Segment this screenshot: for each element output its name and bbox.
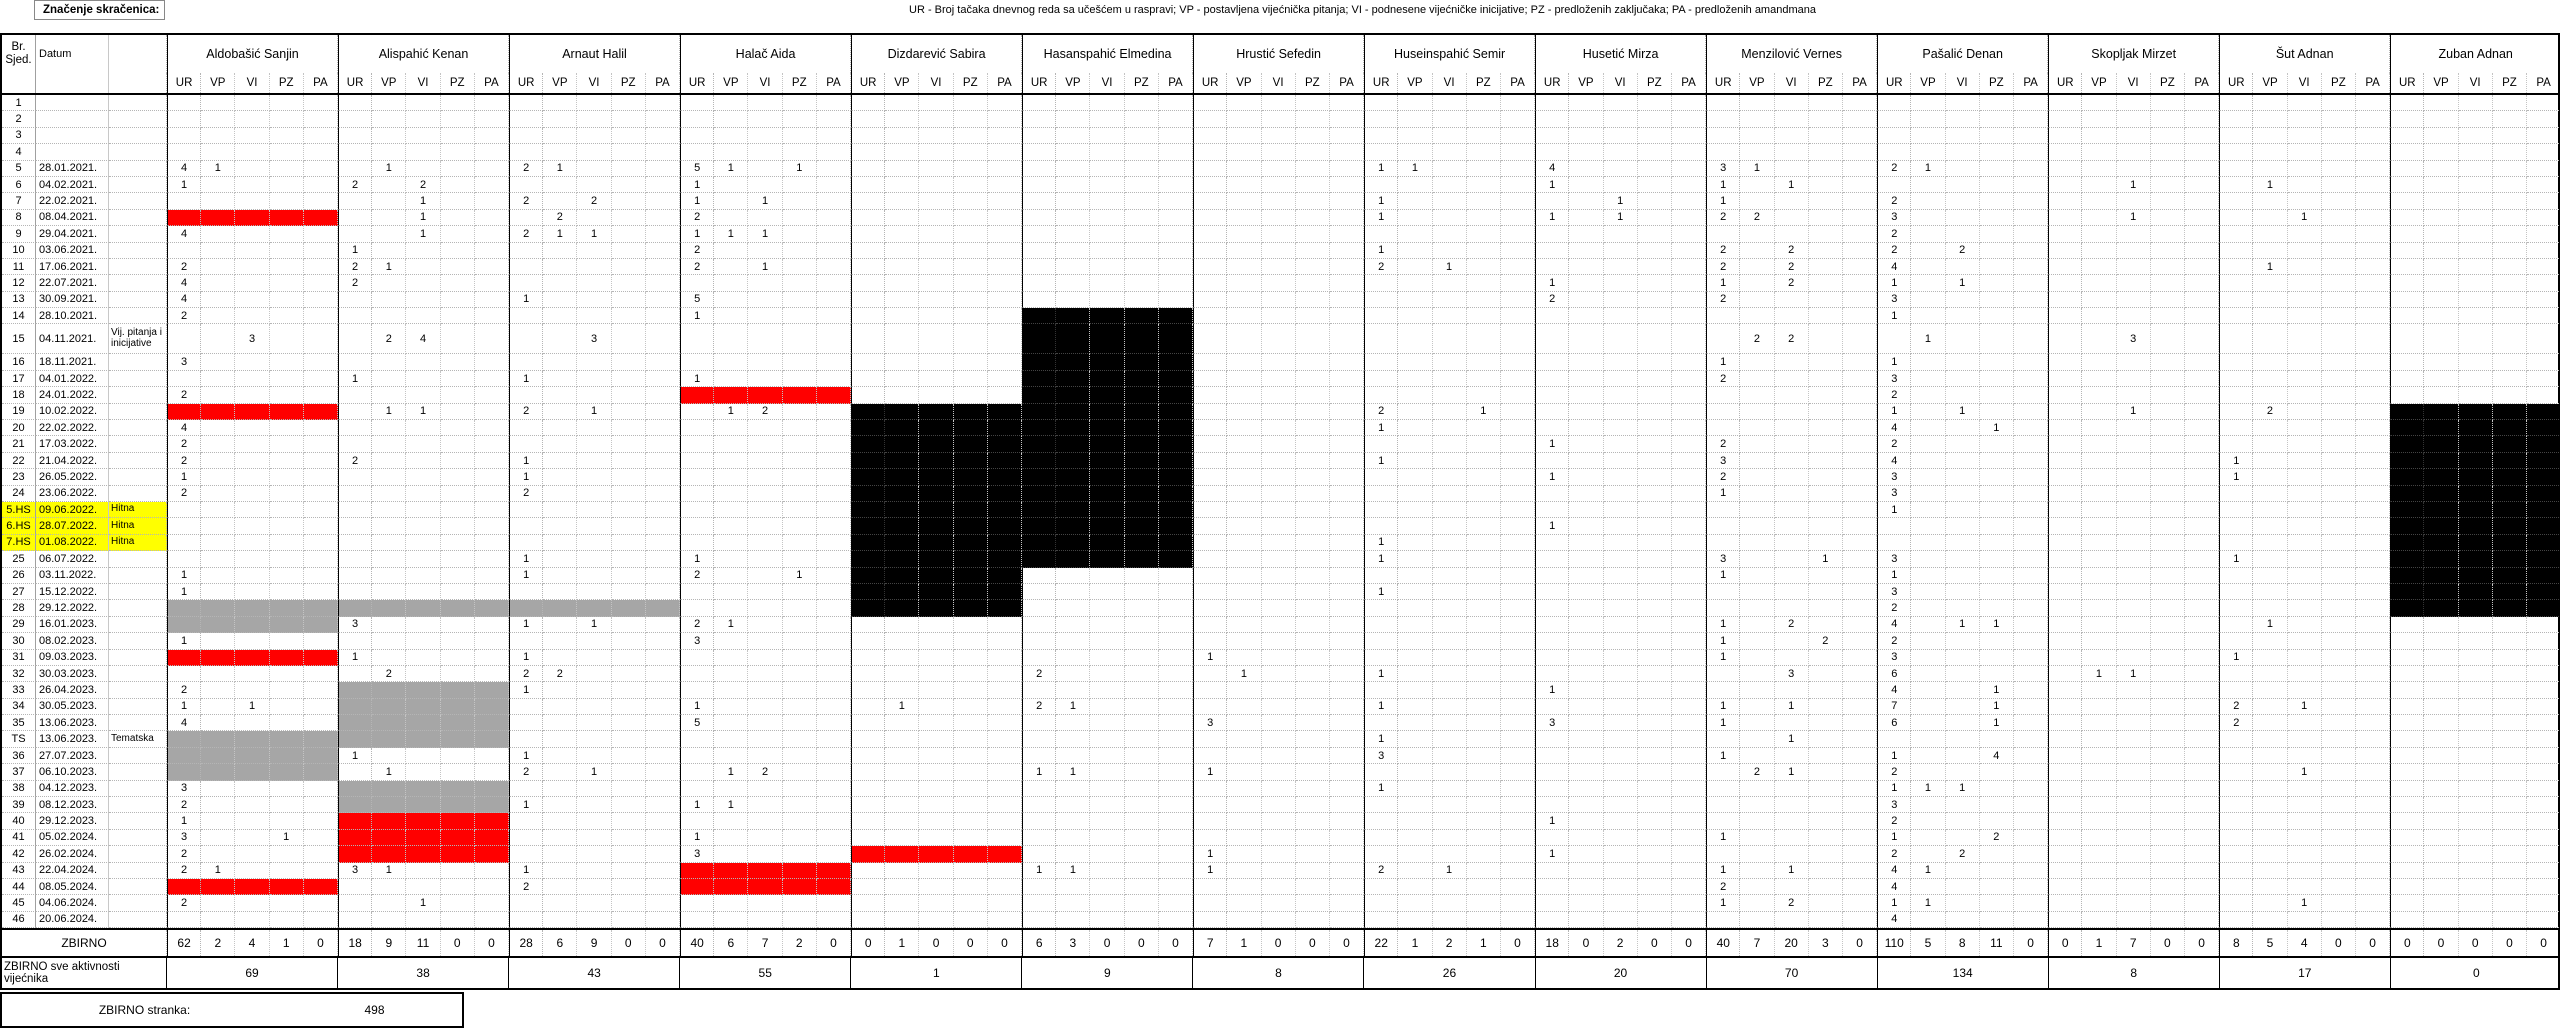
data-cell[interactable] [1193, 486, 1227, 502]
data-cell[interactable] [817, 748, 851, 764]
data-cell[interactable] [2117, 275, 2151, 291]
data-cell[interactable] [885, 128, 919, 144]
data-cell[interactable] [1740, 128, 1774, 144]
data-cell[interactable] [2185, 617, 2219, 633]
row-note[interactable] [109, 846, 167, 862]
data-cell[interactable] [2253, 354, 2287, 370]
data-cell[interactable] [1980, 535, 2014, 551]
data-cell[interactable] [2082, 371, 2116, 387]
data-cell[interactable] [270, 420, 304, 436]
data-cell[interactable] [1604, 764, 1638, 780]
data-cell[interactable] [338, 210, 372, 226]
data-cell[interactable]: 1 [1877, 308, 1911, 324]
data-cell[interactable] [1090, 177, 1124, 193]
data-cell[interactable] [167, 371, 201, 387]
data-cell[interactable] [2219, 243, 2253, 259]
data-cell[interactable]: 2 [1775, 617, 1809, 633]
data-cell[interactable] [2322, 535, 2356, 551]
data-cell[interactable] [1980, 568, 2014, 584]
data-cell[interactable] [1262, 633, 1296, 649]
data-cell[interactable] [1022, 210, 1056, 226]
data-cell[interactable] [1740, 387, 1774, 403]
data-cell[interactable] [543, 111, 577, 127]
data-cell[interactable] [2253, 210, 2287, 226]
data-cell[interactable] [2117, 551, 2151, 567]
zbirno-total-cell[interactable]: 40 [680, 930, 714, 956]
data-cell[interactable] [1911, 387, 1945, 403]
data-cell[interactable]: 1 [1911, 863, 1945, 879]
data-cell[interactable] [1638, 518, 1672, 534]
data-cell[interactable] [1467, 226, 1501, 242]
data-cell[interactable] [509, 95, 543, 111]
data-cell[interactable] [2014, 161, 2048, 177]
data-cell[interactable] [1946, 797, 1980, 813]
data-cell[interactable]: 1 [1535, 275, 1569, 291]
data-cell[interactable] [1330, 111, 1364, 127]
data-cell[interactable] [1467, 436, 1501, 452]
data-cell[interactable] [1604, 666, 1638, 682]
data-cell[interactable] [2014, 535, 2048, 551]
data-cell[interactable] [1056, 781, 1090, 797]
data-cell[interactable] [2048, 354, 2082, 370]
data-cell[interactable] [714, 308, 748, 324]
data-cell[interactable] [1467, 797, 1501, 813]
data-cell[interactable] [954, 584, 988, 600]
data-cell[interactable] [2117, 748, 2151, 764]
zbirno-total-cell[interactable]: 0 [2322, 930, 2356, 956]
data-cell[interactable] [2527, 226, 2560, 242]
data-cell[interactable] [1809, 731, 1843, 747]
data-cell[interactable] [1911, 420, 1945, 436]
data-cell[interactable] [1193, 600, 1227, 616]
data-cell[interactable] [885, 324, 919, 354]
data-cell[interactable] [885, 813, 919, 829]
data-cell[interactable] [509, 731, 543, 747]
data-cell[interactable] [577, 502, 611, 518]
data-cell[interactable]: 1 [167, 584, 201, 600]
data-cell[interactable] [1090, 682, 1124, 698]
data-cell[interactable] [2288, 324, 2322, 354]
data-cell[interactable] [270, 797, 304, 813]
data-cell[interactable] [1090, 764, 1124, 780]
data-cell[interactable] [1980, 259, 2014, 275]
data-cell[interactable] [338, 682, 372, 698]
zbirno-total-cell[interactable]: 18 [338, 930, 372, 956]
row-note[interactable]: Hitna [109, 502, 167, 518]
data-cell[interactable] [2356, 846, 2390, 862]
data-cell[interactable] [1364, 486, 1398, 502]
data-cell[interactable] [2253, 324, 2287, 354]
data-cell[interactable]: 2 [338, 259, 372, 275]
data-cell[interactable] [1535, 830, 1569, 846]
data-cell[interactable] [2253, 830, 2287, 846]
data-cell[interactable] [2014, 666, 2048, 682]
data-cell[interactable] [304, 354, 338, 370]
data-cell[interactable]: 3 [2117, 324, 2151, 354]
data-cell[interactable] [2014, 354, 2048, 370]
data-cell[interactable] [475, 486, 509, 502]
data-cell[interactable]: 1 [372, 161, 406, 177]
data-cell[interactable]: 4 [1877, 617, 1911, 633]
data-cell[interactable]: 1 [1706, 863, 1740, 879]
data-cell[interactable] [304, 502, 338, 518]
data-cell[interactable] [2356, 354, 2390, 370]
data-cell[interactable] [1843, 486, 1877, 502]
data-cell[interactable] [1398, 486, 1432, 502]
data-cell[interactable] [1193, 259, 1227, 275]
data-cell[interactable] [2048, 177, 2082, 193]
data-cell[interactable] [270, 715, 304, 731]
data-cell[interactable]: 1 [1877, 354, 1911, 370]
data-cell[interactable] [2459, 404, 2493, 420]
data-cell[interactable]: 1 [1706, 748, 1740, 764]
data-cell[interactable] [1125, 210, 1159, 226]
data-cell[interactable] [1398, 259, 1432, 275]
data-cell[interactable] [2014, 518, 2048, 534]
data-cell[interactable] [1604, 895, 1638, 911]
data-cell[interactable] [2117, 371, 2151, 387]
data-cell[interactable]: 1 [1706, 895, 1740, 911]
data-cell[interactable] [543, 453, 577, 469]
data-cell[interactable]: 1 [1706, 177, 1740, 193]
data-cell[interactable] [2151, 354, 2185, 370]
data-cell[interactable] [2459, 551, 2493, 567]
data-cell[interactable] [1843, 535, 1877, 551]
data-cell[interactable] [1604, 161, 1638, 177]
data-cell[interactable] [406, 354, 440, 370]
data-cell[interactable] [577, 813, 611, 829]
data-cell[interactable] [338, 535, 372, 551]
data-cell[interactable] [1740, 568, 1774, 584]
data-cell[interactable] [1569, 436, 1603, 452]
data-cell[interactable] [1604, 324, 1638, 354]
member-total-cell[interactable]: 134 [1878, 958, 2049, 988]
data-cell[interactable] [988, 830, 1022, 846]
data-cell[interactable] [1843, 308, 1877, 324]
data-cell[interactable] [406, 453, 440, 469]
data-cell[interactable] [2424, 600, 2458, 616]
data-cell[interactable] [1467, 354, 1501, 370]
data-cell[interactable] [338, 420, 372, 436]
data-cell[interactable] [2185, 813, 2219, 829]
data-cell[interactable] [2048, 568, 2082, 584]
data-cell[interactable] [1843, 568, 1877, 584]
data-cell[interactable] [2082, 354, 2116, 370]
data-cell[interactable] [2356, 863, 2390, 879]
data-cell[interactable] [2219, 813, 2253, 829]
data-cell[interactable] [2527, 813, 2560, 829]
data-cell[interactable]: 4 [1877, 879, 1911, 895]
data-cell[interactable] [1501, 813, 1535, 829]
data-cell[interactable]: 1 [406, 895, 440, 911]
data-cell[interactable] [304, 748, 338, 764]
data-cell[interactable] [543, 715, 577, 731]
zbirno-total-cell[interactable]: 2 [783, 930, 817, 956]
data-cell[interactable] [817, 354, 851, 370]
data-cell[interactable] [1604, 715, 1638, 731]
data-cell[interactable] [1569, 551, 1603, 567]
data-cell[interactable]: 1 [885, 699, 919, 715]
data-cell[interactable] [441, 535, 475, 551]
data-cell[interactable] [1467, 243, 1501, 259]
data-cell[interactable] [372, 797, 406, 813]
data-cell[interactable] [1467, 699, 1501, 715]
data-cell[interactable] [2527, 781, 2560, 797]
data-cell[interactable]: 1 [1877, 748, 1911, 764]
data-cell[interactable] [2253, 453, 2287, 469]
data-cell[interactable] [1809, 387, 1843, 403]
data-cell[interactable] [338, 486, 372, 502]
data-cell[interactable] [885, 193, 919, 209]
data-cell[interactable] [954, 354, 988, 370]
data-cell[interactable] [543, 568, 577, 584]
zbirno-total-cell[interactable]: 3 [1056, 930, 1090, 956]
zbirno-total-cell[interactable]: 0 [2459, 930, 2493, 956]
data-cell[interactable] [2185, 846, 2219, 862]
zbirno-total-cell[interactable]: 0 [612, 930, 646, 956]
data-cell[interactable]: 2 [167, 846, 201, 862]
data-cell[interactable] [509, 436, 543, 452]
data-cell[interactable] [2253, 633, 2287, 649]
row-date[interactable]: 15.12.2022. [36, 584, 109, 600]
data-cell[interactable] [1330, 535, 1364, 551]
data-cell[interactable] [577, 731, 611, 747]
data-cell[interactable] [1330, 633, 1364, 649]
data-cell[interactable] [372, 243, 406, 259]
data-cell[interactable]: 1 [1364, 781, 1398, 797]
data-cell[interactable] [1398, 436, 1432, 452]
data-cell[interactable] [2322, 292, 2356, 308]
data-cell[interactable] [1809, 354, 1843, 370]
data-cell[interactable] [714, 682, 748, 698]
data-cell[interactable] [235, 128, 269, 144]
data-cell[interactable] [2117, 453, 2151, 469]
data-cell[interactable] [851, 95, 885, 111]
data-cell[interactable] [2288, 617, 2322, 633]
data-cell[interactable] [1740, 781, 1774, 797]
data-cell[interactable] [954, 830, 988, 846]
data-cell[interactable] [1569, 453, 1603, 469]
data-cell[interactable] [2493, 748, 2527, 764]
data-cell[interactable] [201, 324, 235, 354]
data-cell[interactable] [646, 371, 680, 387]
data-cell[interactable]: 1 [1535, 177, 1569, 193]
row-note[interactable] [109, 715, 167, 731]
data-cell[interactable] [1330, 354, 1364, 370]
data-cell[interactable] [1296, 436, 1330, 452]
data-cell[interactable] [201, 308, 235, 324]
data-cell[interactable] [646, 95, 680, 111]
data-cell[interactable] [988, 518, 1022, 534]
data-cell[interactable] [2253, 275, 2287, 291]
data-cell[interactable] [1911, 568, 1945, 584]
data-cell[interactable] [1125, 128, 1159, 144]
row-note[interactable] [109, 177, 167, 193]
data-cell[interactable] [1535, 144, 1569, 160]
data-cell[interactable] [2117, 617, 2151, 633]
data-cell[interactable] [1980, 324, 2014, 354]
data-cell[interactable] [954, 682, 988, 698]
data-cell[interactable]: 1 [1911, 781, 1945, 797]
data-cell[interactable] [714, 748, 748, 764]
data-cell[interactable] [1535, 259, 1569, 275]
data-cell[interactable]: 1 [1364, 584, 1398, 600]
data-cell[interactable] [2459, 584, 2493, 600]
data-cell[interactable] [1398, 95, 1432, 111]
data-cell[interactable] [441, 354, 475, 370]
data-cell[interactable] [2424, 128, 2458, 144]
data-cell[interactable]: 3 [1877, 371, 1911, 387]
data-cell[interactable] [1330, 275, 1364, 291]
data-cell[interactable] [1056, 666, 1090, 682]
data-cell[interactable] [543, 764, 577, 780]
data-cell[interactable] [2048, 243, 2082, 259]
row-note[interactable] [109, 895, 167, 911]
data-cell[interactable] [475, 895, 509, 911]
row-note[interactable] [109, 879, 167, 895]
data-cell[interactable] [748, 469, 782, 485]
data-cell[interactable] [1056, 846, 1090, 862]
data-cell[interactable] [919, 535, 953, 551]
row-note[interactable] [109, 764, 167, 780]
data-cell[interactable] [2459, 699, 2493, 715]
data-cell[interactable] [1980, 210, 2014, 226]
data-cell[interactable] [1501, 682, 1535, 698]
data-cell[interactable] [2356, 502, 2390, 518]
data-cell[interactable] [441, 404, 475, 420]
data-cell[interactable] [2459, 111, 2493, 127]
data-cell[interactable] [2527, 568, 2560, 584]
data-cell[interactable] [919, 764, 953, 780]
data-cell[interactable] [1740, 275, 1774, 291]
data-cell[interactable] [201, 259, 235, 275]
data-cell[interactable] [441, 161, 475, 177]
data-cell[interactable] [2390, 144, 2424, 160]
data-cell[interactable]: 3 [1193, 715, 1227, 731]
data-cell[interactable] [509, 518, 543, 534]
data-cell[interactable] [1090, 731, 1124, 747]
data-cell[interactable] [1809, 879, 1843, 895]
data-cell[interactable] [1398, 226, 1432, 242]
data-cell[interactable] [1296, 830, 1330, 846]
data-cell[interactable] [2219, 95, 2253, 111]
data-cell[interactable] [372, 308, 406, 324]
data-cell[interactable] [2459, 879, 2493, 895]
row-date[interactable]: 26.05.2022. [36, 469, 109, 485]
data-cell[interactable]: 1 [1911, 895, 1945, 911]
data-cell[interactable]: 1 [748, 193, 782, 209]
data-cell[interactable] [1022, 354, 1056, 370]
data-cell[interactable] [475, 863, 509, 879]
data-cell[interactable] [1398, 453, 1432, 469]
data-cell[interactable] [1569, 387, 1603, 403]
data-cell[interactable] [1090, 292, 1124, 308]
data-cell[interactable] [646, 387, 680, 403]
data-cell[interactable] [2356, 128, 2390, 144]
data-cell[interactable] [1946, 518, 1980, 534]
data-cell[interactable] [577, 420, 611, 436]
data-cell[interactable]: 4 [406, 324, 440, 354]
data-cell[interactable] [885, 161, 919, 177]
data-cell[interactable] [1159, 404, 1193, 420]
data-cell[interactable] [2014, 846, 2048, 862]
data-cell[interactable] [817, 324, 851, 354]
row-date[interactable]: 28.10.2021. [36, 308, 109, 324]
zbirno-total-cell[interactable]: 5 [1911, 930, 1945, 956]
data-cell[interactable] [680, 387, 714, 403]
data-cell[interactable] [2253, 879, 2287, 895]
data-cell[interactable] [441, 731, 475, 747]
data-cell[interactable] [1398, 830, 1432, 846]
data-cell[interactable] [1398, 354, 1432, 370]
data-cell[interactable] [1672, 436, 1706, 452]
data-cell[interactable] [1740, 486, 1774, 502]
data-cell[interactable] [1398, 551, 1432, 567]
data-cell[interactable] [646, 177, 680, 193]
row-number[interactable]: 36 [2, 748, 36, 764]
data-cell[interactable] [954, 486, 988, 502]
data-cell[interactable] [201, 699, 235, 715]
data-cell[interactable] [1056, 275, 1090, 291]
data-cell[interactable] [2493, 420, 2527, 436]
data-cell[interactable] [1467, 748, 1501, 764]
data-cell[interactable] [1262, 568, 1296, 584]
data-cell[interactable] [2459, 895, 2493, 911]
data-cell[interactable] [1262, 128, 1296, 144]
data-cell[interactable] [1090, 879, 1124, 895]
data-cell[interactable] [1911, 551, 1945, 567]
data-cell[interactable] [1980, 846, 2014, 862]
zbirno-total-cell[interactable]: 0 [817, 930, 851, 956]
data-cell[interactable] [1398, 210, 1432, 226]
data-cell[interactable] [1809, 453, 1843, 469]
row-note[interactable] [109, 797, 167, 813]
data-cell[interactable] [1843, 436, 1877, 452]
data-cell[interactable] [2493, 551, 2527, 567]
data-cell[interactable] [441, 420, 475, 436]
data-cell[interactable] [1398, 666, 1432, 682]
data-cell[interactable] [748, 748, 782, 764]
data-cell[interactable] [2185, 633, 2219, 649]
data-cell[interactable] [817, 111, 851, 127]
data-cell[interactable] [1125, 715, 1159, 731]
data-cell[interactable] [817, 275, 851, 291]
data-cell[interactable] [2527, 863, 2560, 879]
data-cell[interactable] [1125, 551, 1159, 567]
data-cell[interactable] [2424, 436, 2458, 452]
data-cell[interactable] [270, 469, 304, 485]
data-cell[interactable] [2014, 748, 2048, 764]
data-cell[interactable] [1843, 617, 1877, 633]
data-cell[interactable] [1501, 764, 1535, 780]
data-cell[interactable] [612, 469, 646, 485]
data-cell[interactable] [338, 584, 372, 600]
data-cell[interactable] [1330, 486, 1364, 502]
data-cell[interactable] [1638, 568, 1672, 584]
data-cell[interactable] [2253, 748, 2287, 764]
data-cell[interactable] [2048, 731, 2082, 747]
data-cell[interactable] [304, 666, 338, 682]
data-cell[interactable] [1296, 243, 1330, 259]
zbirno-total-cell[interactable]: 0 [988, 930, 1022, 956]
data-cell[interactable] [372, 830, 406, 846]
data-cell[interactable] [406, 243, 440, 259]
data-cell[interactable] [2288, 535, 2322, 551]
data-cell[interactable] [1501, 781, 1535, 797]
data-cell[interactable] [1296, 633, 1330, 649]
data-cell[interactable] [851, 748, 885, 764]
data-cell[interactable] [1433, 371, 1467, 387]
